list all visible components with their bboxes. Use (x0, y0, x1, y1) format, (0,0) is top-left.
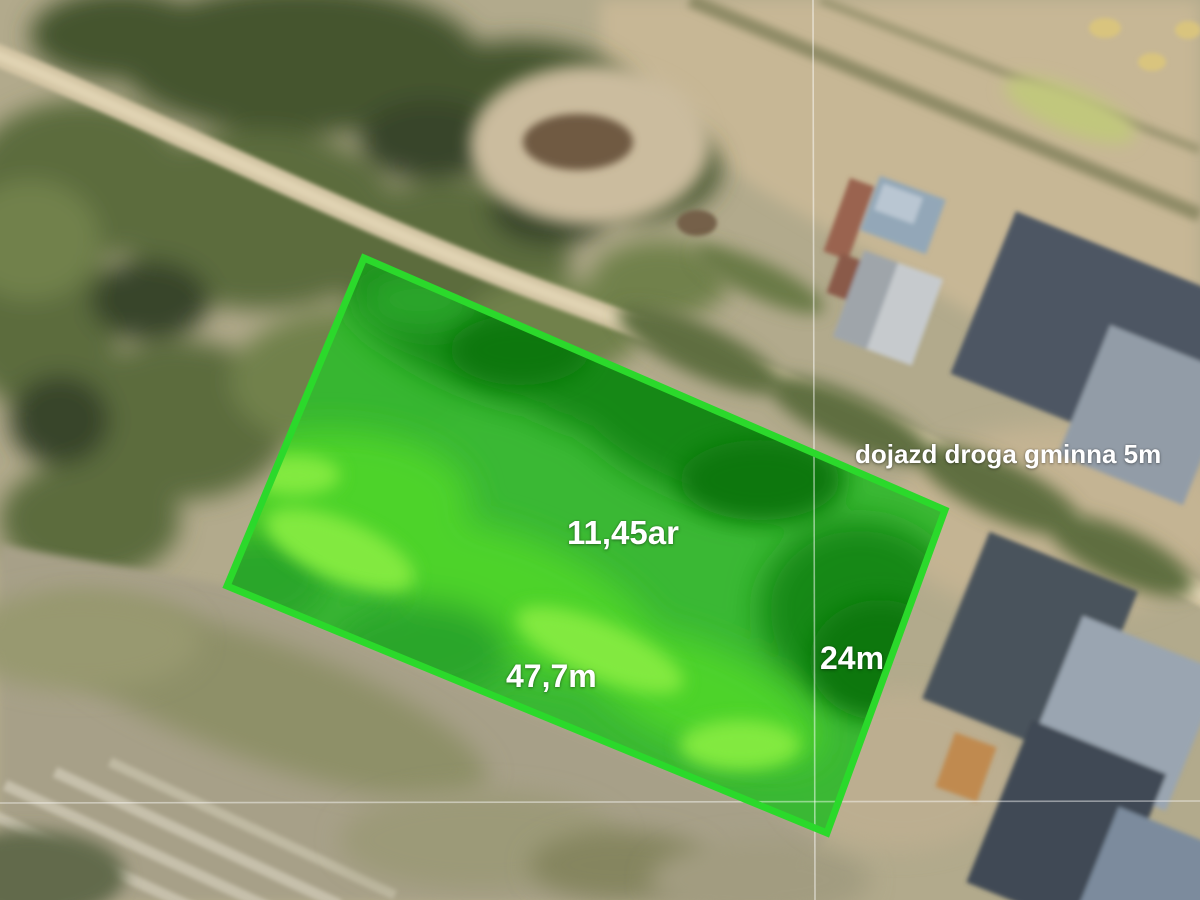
parcel-width-label: 24m (820, 642, 884, 674)
parcel-area-label: 11,45ar (567, 516, 679, 549)
aerial-map: dojazd droga gminna 5m 11,45ar 47,7m 24m (0, 0, 1200, 900)
parcel-length-label: 47,7m (506, 660, 597, 692)
access-road-label: dojazd droga gminna 5m (855, 441, 1161, 467)
